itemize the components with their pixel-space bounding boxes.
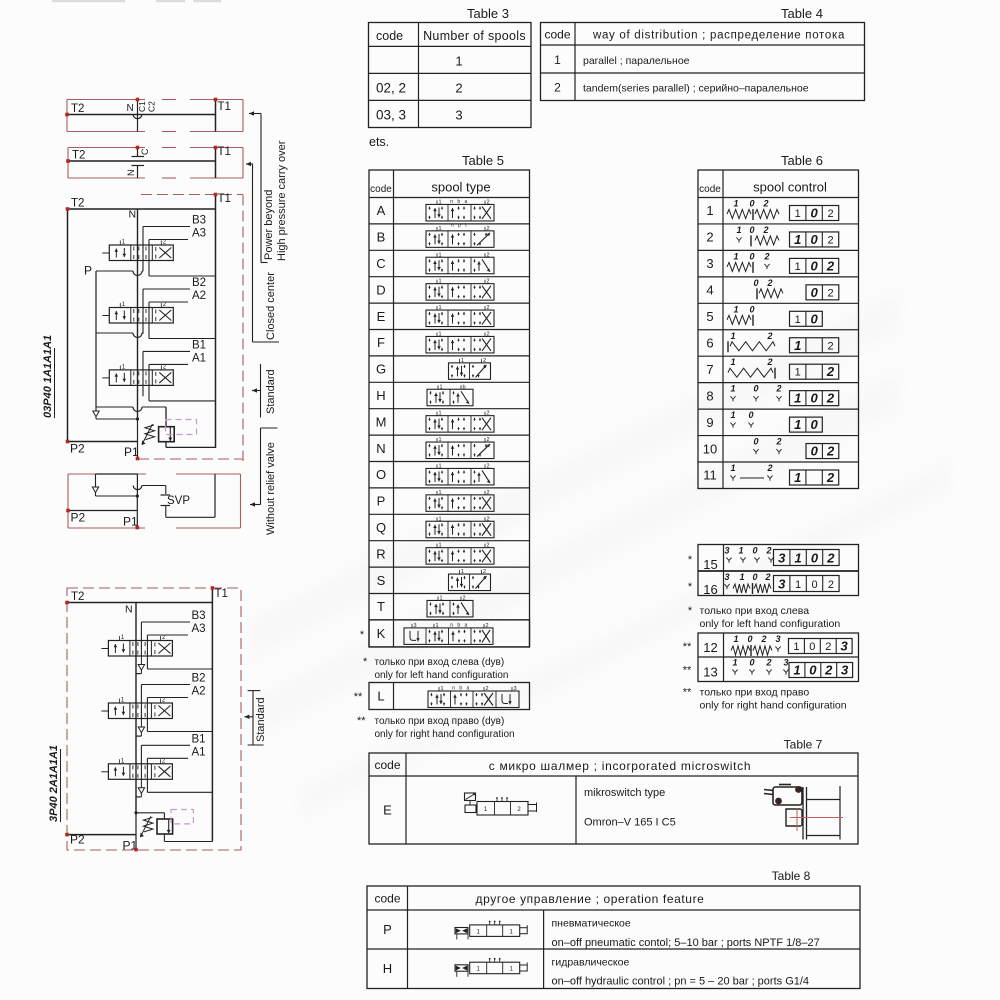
svg-text:1: 1 <box>440 595 443 601</box>
svg-text:on–off hydraulic control ; pn: on–off hydraulic control ; pn = 5 – 20 b… <box>552 976 810 988</box>
svg-text:N: N <box>129 209 137 221</box>
svg-text:1: 1 <box>484 807 488 813</box>
svg-text:Omron–V 165 I C5: Omron–V 165 I C5 <box>584 817 676 829</box>
svg-text:only for left hand configurati: only for left hand configuration <box>700 618 841 630</box>
svg-text:0: 0 <box>811 285 819 300</box>
svg-text:2: 2 <box>826 470 835 485</box>
svg-text:A3: A3 <box>192 228 206 240</box>
svg-text:B2: B2 <box>192 277 206 289</box>
svg-text:2: 2 <box>826 444 835 459</box>
svg-text:1: 1 <box>439 490 442 496</box>
svg-text:1: 1 <box>733 251 738 261</box>
svg-text:2: 2 <box>483 569 486 575</box>
svg-text:*: * <box>688 605 693 617</box>
svg-text:1: 1 <box>794 391 801 406</box>
svg-text:2: 2 <box>764 572 770 582</box>
svg-text:T1: T1 <box>218 146 231 158</box>
svg-text:0: 0 <box>810 206 818 221</box>
svg-text:0: 0 <box>809 641 815 653</box>
svg-text:T: T <box>377 599 385 614</box>
svg-text:B1: B1 <box>192 339 206 351</box>
svg-text:8: 8 <box>706 388 713 403</box>
svg-text:0: 0 <box>811 579 817 591</box>
svg-text:E: E <box>383 803 392 818</box>
svg-text:1: 1 <box>730 410 735 420</box>
svg-text:Standard: Standard <box>255 697 267 742</box>
svg-text:only for left hand configurati: only for left hand configuration <box>375 670 509 681</box>
svg-text:1: 1 <box>439 543 442 549</box>
svg-text:12: 12 <box>703 640 717 655</box>
svg-text:2: 2 <box>762 199 768 209</box>
svg-text:E: E <box>377 309 386 324</box>
svg-text:1: 1 <box>736 225 741 235</box>
svg-text:1: 1 <box>439 411 442 417</box>
svg-text:2: 2 <box>487 516 490 522</box>
svg-text:2: 2 <box>486 623 489 629</box>
svg-text:*: * <box>688 554 693 566</box>
svg-text:C1: C1 <box>137 101 147 112</box>
svg-text:2: 2 <box>487 252 490 258</box>
svg-text:way of distribution ; распред: way of distribution ; распределение пото… <box>592 30 845 42</box>
svg-text:3: 3 <box>841 663 849 678</box>
svg-text:1: 1 <box>795 367 801 379</box>
svg-text:A: A <box>377 203 386 218</box>
svg-text:1: 1 <box>439 252 442 258</box>
svg-text:1: 1 <box>439 331 442 337</box>
svg-text:SVP: SVP <box>167 495 190 507</box>
svg-text:0: 0 <box>753 437 758 447</box>
svg-text:1: 1 <box>793 641 799 653</box>
svg-text:2: 2 <box>766 331 772 341</box>
svg-text:только при вход слева (dyв): только при вход слева (dyв) <box>375 657 505 668</box>
svg-text:1: 1 <box>477 929 481 935</box>
svg-text:spool type: spool type <box>431 180 490 195</box>
svg-text:H: H <box>383 961 392 976</box>
svg-text:1: 1 <box>439 305 442 311</box>
svg-text:3: 3 <box>414 623 417 629</box>
svg-text:Table 6: Table 6 <box>781 153 823 168</box>
svg-text:0: 0 <box>811 444 819 459</box>
svg-text:1: 1 <box>477 967 481 973</box>
svg-text:1: 1 <box>510 929 514 935</box>
svg-text:G: G <box>376 362 386 377</box>
svg-text:1: 1 <box>436 623 439 629</box>
svg-text:Standard: Standard <box>265 369 277 414</box>
svg-text:P: P <box>84 264 92 278</box>
svg-text:0: 0 <box>749 304 754 314</box>
svg-text:High pressure carry over: High pressure carry over <box>276 140 288 261</box>
svg-text:A3: A3 <box>192 623 206 635</box>
svg-text:2: 2 <box>760 634 766 644</box>
svg-text:1: 1 <box>794 417 801 432</box>
svg-text:T1: T1 <box>218 101 231 113</box>
svg-text:**: ** <box>683 665 692 677</box>
svg-text:02, 2: 02, 2 <box>376 81 406 96</box>
svg-text:1: 1 <box>794 551 801 566</box>
svg-text:code: code <box>370 184 392 195</box>
svg-text:1: 1 <box>732 658 737 668</box>
svg-text:2: 2 <box>827 340 833 352</box>
svg-text:on–off pneumatic contol; 5–10: on–off pneumatic contol; 5–10 bar ; port… <box>552 937 820 949</box>
svg-text:2: 2 <box>766 278 772 288</box>
svg-text:2: 2 <box>827 234 833 246</box>
svg-text:T1: T1 <box>218 193 231 205</box>
svg-text:3: 3 <box>706 256 713 271</box>
svg-text:гидравлическое: гидравлическое <box>552 957 630 969</box>
svg-text:code: code <box>376 29 403 43</box>
svg-text:code: code <box>699 184 721 195</box>
svg-text:1: 1 <box>794 338 801 353</box>
svg-text:03, 3: 03, 3 <box>376 108 406 123</box>
svg-text:Q: Q <box>376 520 386 535</box>
svg-text:2: 2 <box>828 579 834 591</box>
svg-text:code: code <box>374 892 400 906</box>
svg-text:Table 4: Table 4 <box>781 6 823 21</box>
svg-text:2: 2 <box>826 258 835 273</box>
svg-text:только при вход право: только при вход право <box>700 687 810 699</box>
svg-text:1: 1 <box>440 384 443 390</box>
svg-text:Number of spools: Number of spools <box>423 29 526 43</box>
svg-text:2: 2 <box>487 279 490 285</box>
svg-text:1: 1 <box>795 261 801 273</box>
svg-text:1: 1 <box>554 53 561 67</box>
svg-text:2: 2 <box>826 364 835 379</box>
svg-text:**: ** <box>357 715 366 727</box>
svg-text:1: 1 <box>439 226 442 232</box>
svg-text:3: 3 <box>775 634 780 644</box>
svg-text:0: 0 <box>749 658 754 668</box>
svg-text:2: 2 <box>775 384 781 394</box>
svg-text:2: 2 <box>487 199 490 205</box>
svg-text:7: 7 <box>706 362 713 377</box>
svg-text:C2: C2 <box>147 101 157 112</box>
svg-text:1: 1 <box>795 579 801 591</box>
svg-text:2: 2 <box>487 411 490 417</box>
svg-text:N: N <box>376 441 385 456</box>
svg-text:2: 2 <box>455 81 462 96</box>
svg-text:другое управление ; operatio: другое управление ; operation feature <box>476 892 705 906</box>
svg-text:M: M <box>376 414 387 429</box>
svg-text:0: 0 <box>749 251 754 261</box>
svg-text:2: 2 <box>825 641 831 653</box>
svg-text:n b a: n b a <box>452 686 471 692</box>
svg-text:1: 1 <box>441 686 444 692</box>
svg-text:T2: T2 <box>71 103 84 115</box>
svg-text:0: 0 <box>752 572 757 582</box>
svg-text:2: 2 <box>766 357 772 367</box>
svg-text:B3: B3 <box>192 215 206 227</box>
svg-text:4: 4 <box>706 283 713 298</box>
svg-text:P2: P2 <box>70 442 85 456</box>
svg-text:0: 0 <box>809 663 817 678</box>
svg-text:0: 0 <box>749 225 754 235</box>
svg-text:1: 1 <box>738 546 743 556</box>
svg-text:O: O <box>376 467 386 482</box>
svg-text:P2: P2 <box>70 833 85 847</box>
svg-text:0: 0 <box>749 199 754 209</box>
svg-text:**: ** <box>354 691 363 703</box>
svg-text:Table 5: Table 5 <box>462 153 504 168</box>
svg-text:2: 2 <box>487 543 490 549</box>
svg-text:0: 0 <box>748 410 753 420</box>
svg-text:5: 5 <box>706 309 713 324</box>
svg-text:code: code <box>544 28 570 42</box>
svg-text:2: 2 <box>554 81 561 95</box>
svg-text:только при вход слева: только при вход слева <box>700 605 810 617</box>
svg-text:1: 1 <box>706 203 713 218</box>
svg-text:0: 0 <box>810 391 818 406</box>
svg-text:13: 13 <box>703 665 717 680</box>
svg-text:2: 2 <box>766 463 772 473</box>
svg-text:6: 6 <box>706 335 713 350</box>
svg-text:2: 2 <box>826 551 835 566</box>
svg-text:1: 1 <box>733 634 738 644</box>
svg-text:2: 2 <box>487 437 490 443</box>
svg-text:B2: B2 <box>192 673 206 685</box>
svg-text:2: 2 <box>487 490 490 496</box>
svg-text:2: 2 <box>765 546 771 556</box>
svg-text:1: 1 <box>455 54 462 69</box>
svg-text:0: 0 <box>811 551 819 566</box>
svg-text:Without relief valve: Without relief valve <box>265 442 277 535</box>
svg-text:1: 1 <box>461 358 464 364</box>
svg-text:1: 1 <box>739 572 744 582</box>
svg-text:2: 2 <box>487 463 490 469</box>
svg-text:1: 1 <box>439 437 442 443</box>
svg-text:H: H <box>376 388 385 403</box>
svg-text:*: * <box>363 656 368 668</box>
svg-text:2: 2 <box>487 226 490 232</box>
svg-text:11: 11 <box>703 468 717 483</box>
svg-text:0: 0 <box>810 232 818 247</box>
svg-text:P2: P2 <box>71 511 86 525</box>
svg-text:1: 1 <box>793 663 800 678</box>
svg-text:S: S <box>377 573 386 588</box>
svg-text:пневматическое: пневматическое <box>552 918 631 930</box>
svg-text:2: 2 <box>487 305 490 311</box>
svg-text:P: P <box>377 494 386 509</box>
svg-text:2: 2 <box>483 358 486 364</box>
svg-text:2: 2 <box>763 251 769 261</box>
svg-text:**: ** <box>683 687 692 699</box>
svg-text:2: 2 <box>517 807 521 813</box>
svg-text:2: 2 <box>765 658 771 668</box>
svg-text:parallel ; паралельное: parallel ; паралельное <box>583 55 690 67</box>
svg-text:T2: T2 <box>72 150 85 162</box>
svg-text:3: 3 <box>778 577 786 592</box>
svg-text:only for right hand configurat: only for right hand configuration <box>375 729 515 740</box>
svg-text:2: 2 <box>486 686 489 692</box>
svg-text:mikroswitch type: mikroswitch type <box>584 787 665 799</box>
svg-text:1: 1 <box>730 331 735 341</box>
svg-text:10: 10 <box>703 441 717 456</box>
svg-text:0: 0 <box>753 278 758 288</box>
svg-text:2: 2 <box>775 437 781 447</box>
svg-text:Table 7: Table 7 <box>784 738 823 752</box>
svg-text:0: 0 <box>810 258 818 273</box>
svg-text:A2: A2 <box>192 290 206 302</box>
svg-text:K: K <box>377 626 386 641</box>
svg-text:B3: B3 <box>192 610 206 622</box>
svg-text:только при вход право (dyв): только при вход право (dyв) <box>375 716 505 727</box>
svg-text:B: B <box>377 230 386 245</box>
svg-text:1: 1 <box>733 304 738 314</box>
svg-text:2: 2 <box>706 230 713 245</box>
svg-text:9: 9 <box>706 415 713 430</box>
svg-text:B1: B1 <box>192 733 206 745</box>
svg-text:C: C <box>140 148 150 155</box>
svg-text:Closed center: Closed center <box>265 272 277 340</box>
svg-text:T2: T2 <box>71 198 84 210</box>
svg-text:1: 1 <box>439 516 442 522</box>
svg-text:N: N <box>126 170 136 177</box>
svg-text:code: code <box>374 758 400 772</box>
svg-text:Table 3: Table 3 <box>467 6 509 21</box>
svg-text:3: 3 <box>724 572 729 582</box>
svg-text:n b a: n b a <box>450 199 469 205</box>
svg-text:2: 2 <box>762 225 768 235</box>
svg-text:15: 15 <box>703 557 717 572</box>
svg-text:3: 3 <box>514 686 517 692</box>
svg-text:с микро шалмер ; incorporated: с микро шалмер ; incorporated microswitc… <box>489 759 752 773</box>
svg-text:0: 0 <box>747 634 752 644</box>
svg-text:3: 3 <box>778 551 786 566</box>
svg-text:R: R <box>376 546 385 561</box>
svg-text:1: 1 <box>439 199 442 205</box>
svg-text:3P40 2A1A1A1: 3P40 2A1A1A1 <box>48 745 60 822</box>
svg-text:1: 1 <box>510 967 514 973</box>
svg-text:3: 3 <box>841 639 849 654</box>
svg-text:3: 3 <box>783 658 788 668</box>
svg-text:3: 3 <box>455 108 462 123</box>
svg-text:1: 1 <box>730 463 735 473</box>
svg-text:1: 1 <box>794 232 801 247</box>
svg-text:T1: T1 <box>215 588 228 600</box>
svg-text:2: 2 <box>826 391 835 406</box>
svg-text:0: 0 <box>753 384 758 394</box>
svg-text:tandem(series parallel) ; сер: tandem(series parallel) ; серийно–парале… <box>583 83 809 95</box>
svg-text:1: 1 <box>730 384 735 394</box>
svg-text:03P40 1A1A1A1: 03P40 1A1A1A1 <box>42 335 54 418</box>
svg-text:1: 1 <box>730 357 735 367</box>
svg-text:F: F <box>377 335 385 350</box>
svg-text:2: 2 <box>487 331 490 337</box>
svg-text:C: C <box>376 256 385 271</box>
svg-text:n b a: n b a <box>450 622 469 628</box>
svg-text:N: N <box>125 604 133 616</box>
svg-text:*: * <box>360 629 365 641</box>
svg-text:b: b <box>463 384 466 390</box>
svg-text:*: * <box>688 581 693 593</box>
svg-text:spool control: spool control <box>753 180 827 195</box>
svg-text:1: 1 <box>794 470 801 485</box>
svg-text:Power beyond: Power beyond <box>263 190 275 260</box>
svg-text:1: 1 <box>733 199 738 209</box>
svg-text:only for right hand configurat: only for right hand configuration <box>700 700 847 712</box>
svg-text:0: 0 <box>810 311 818 326</box>
svg-text:3: 3 <box>724 546 729 556</box>
svg-text:2: 2 <box>828 287 834 299</box>
svg-text:16: 16 <box>703 582 717 597</box>
svg-text:2: 2 <box>463 595 466 601</box>
svg-text:1: 1 <box>461 569 464 575</box>
svg-text:ets.: ets. <box>369 135 389 149</box>
svg-text:L: L <box>377 689 384 704</box>
svg-text:N: N <box>127 103 134 114</box>
svg-text:1: 1 <box>795 208 801 220</box>
svg-text:1: 1 <box>439 463 442 469</box>
svg-text:Table 8: Table 8 <box>772 869 811 883</box>
svg-text:1: 1 <box>795 314 801 326</box>
svg-text:2: 2 <box>824 663 833 678</box>
svg-text:A2: A2 <box>192 686 206 698</box>
svg-text:P: P <box>383 922 392 937</box>
svg-text:D: D <box>376 282 385 297</box>
svg-text:0: 0 <box>810 417 818 432</box>
svg-text:T2: T2 <box>71 591 84 603</box>
svg-text:2: 2 <box>827 208 833 220</box>
svg-text:**: ** <box>683 641 692 653</box>
svg-text:1: 1 <box>439 279 442 285</box>
svg-text:0: 0 <box>752 546 757 556</box>
svg-text:A1: A1 <box>192 352 206 364</box>
svg-text:A1: A1 <box>192 746 206 758</box>
